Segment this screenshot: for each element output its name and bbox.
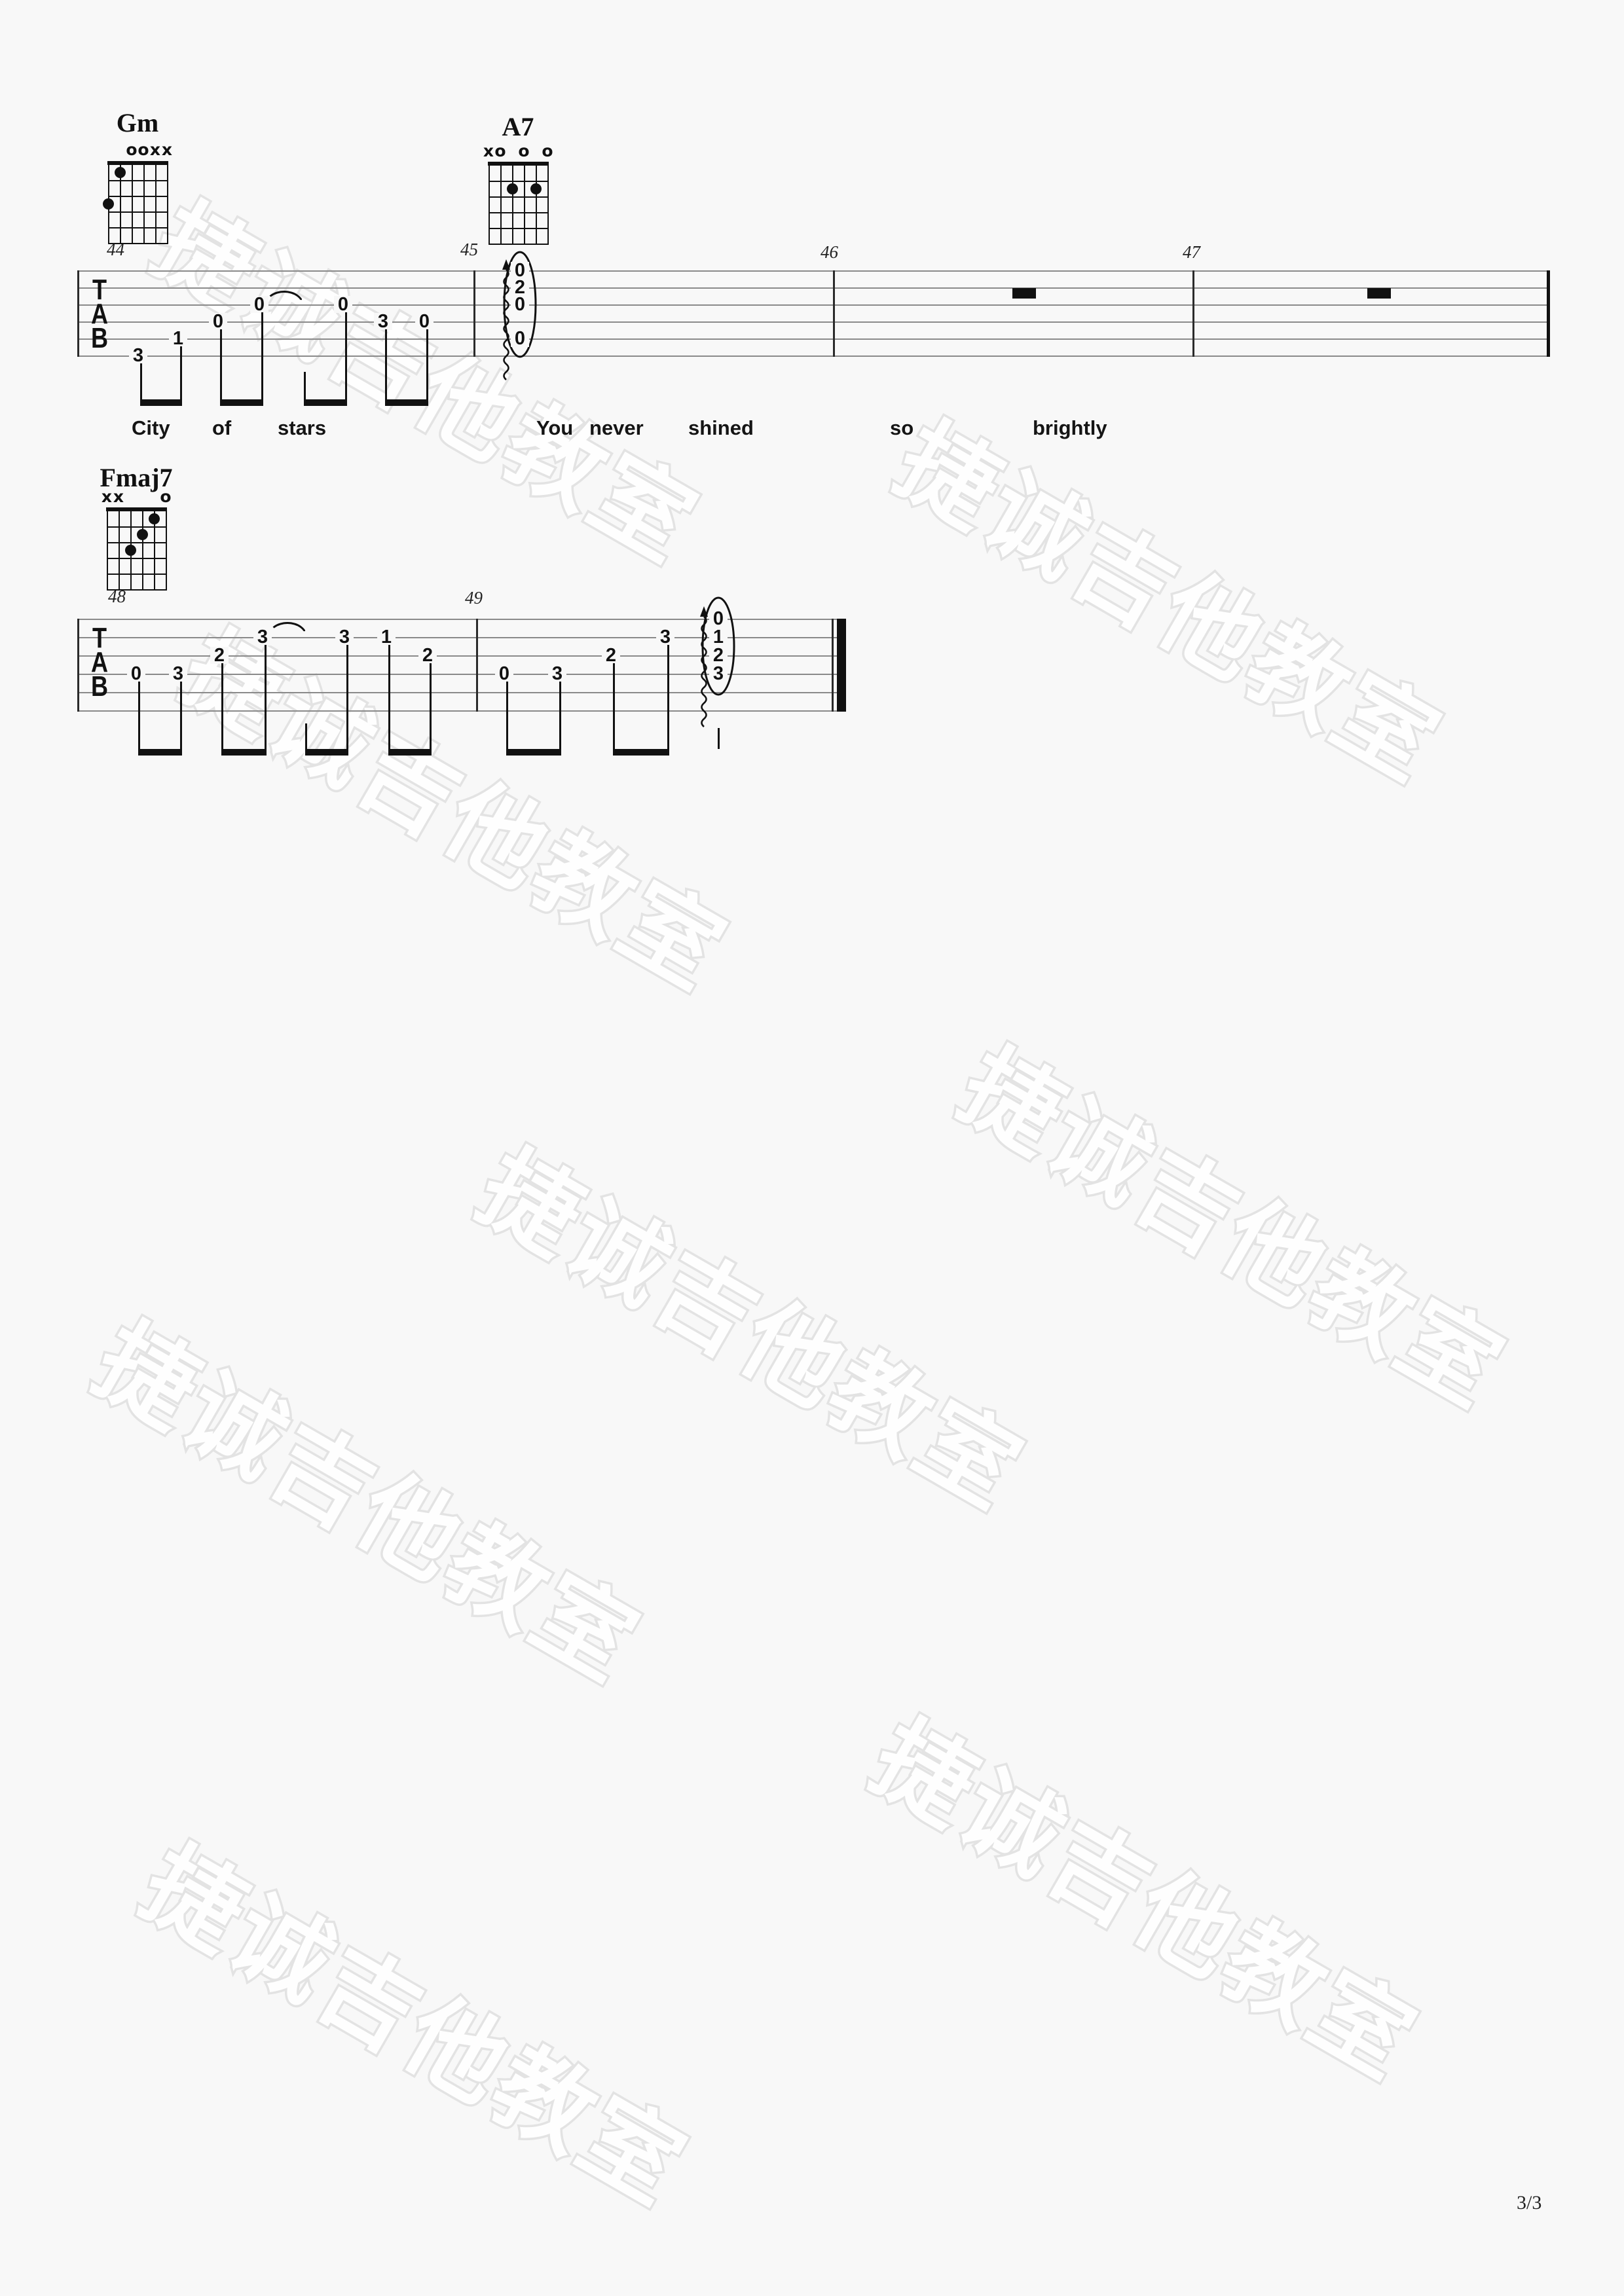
- chord-grid-fret-line: [489, 196, 547, 198]
- chord-grid-nut: [106, 507, 166, 511]
- chord-finger-dot: [103, 198, 114, 210]
- tie-arc: [268, 622, 307, 636]
- lyric-word: shined: [688, 416, 754, 440]
- page-number: 3/3: [1517, 2192, 1541, 2214]
- open-string-indicator: o: [538, 141, 557, 160]
- tab-note: 2: [602, 647, 620, 664]
- chord-grid-string-line: [536, 162, 537, 245]
- chord-grid-string-line: [547, 162, 549, 245]
- chord-finger-dot: [530, 183, 542, 194]
- chord-finger-dot: [125, 545, 136, 556]
- chord-grid-nut: [488, 162, 548, 166]
- barline-start: [77, 270, 79, 357]
- end-barline: [1547, 270, 1550, 357]
- staff-line: [77, 270, 1547, 272]
- final-barline-thick: [837, 619, 846, 712]
- chord-grid-fret-line: [489, 228, 547, 229]
- note-stem: [221, 663, 223, 756]
- chord-grid-fret-line: [489, 181, 547, 182]
- eighth-note-beam: [221, 749, 267, 756]
- note-stem: [430, 663, 432, 756]
- chord-name-label: A7: [452, 111, 583, 142]
- eighth-note-beam: [304, 399, 347, 406]
- lyric-word: brightly: [1033, 416, 1107, 440]
- chord-grid-string-line: [132, 161, 133, 244]
- muted-string-indicator: x: [157, 140, 177, 159]
- tab-note: 3: [335, 629, 354, 646]
- eighth-note-beam: [138, 749, 182, 756]
- measure-number: 46: [821, 242, 838, 263]
- barline: [476, 619, 478, 712]
- tab-note: 0: [209, 313, 227, 330]
- open-string-indicator: o: [156, 487, 175, 506]
- note-stem: [426, 329, 428, 406]
- barline: [473, 270, 475, 357]
- eighth-note-beam: [385, 399, 428, 406]
- tab-clef: TAB: [84, 278, 115, 350]
- final-barline-thin: [832, 619, 834, 712]
- chord-grid-fret-line: [108, 180, 167, 181]
- measure-number: 45: [460, 240, 478, 260]
- sheet-music-page: 捷诚吉他教室捷诚吉他教室捷诚吉他教室捷诚吉他教室捷诚吉他教室捷诚吉他教室捷诚吉他…: [0, 0, 1624, 2296]
- measure-number: 47: [1183, 242, 1200, 263]
- chord-stub-stem: [718, 728, 720, 749]
- chord-grid-string-line: [167, 161, 168, 244]
- chord-grid-fret-line: [107, 526, 166, 528]
- eighth-note-beam: [613, 749, 669, 756]
- tab-note: 3: [656, 629, 674, 646]
- eighth-note-beam: [388, 749, 432, 756]
- chord-name-label: Gm: [72, 107, 203, 138]
- tab-note: 1: [377, 629, 396, 646]
- eighth-note-beam: [140, 399, 182, 406]
- tab-note: 3: [548, 665, 566, 682]
- whole-rest: [1012, 288, 1036, 299]
- strum-chord-fret: 0: [511, 296, 529, 313]
- chord-grid-fret-line: [489, 212, 547, 213]
- chord-grid-fret-line: [107, 558, 166, 559]
- measure-number: 48: [108, 587, 126, 607]
- note-stem: [180, 682, 182, 756]
- strum-chord-fret: 2: [709, 647, 728, 664]
- chord-grid-string-line: [107, 507, 108, 591]
- chord-grid-fret-line: [108, 227, 167, 228]
- music-layer: GmooxxA7xoooFmaj7xxoTAB44454647310003002…: [0, 0, 1624, 2296]
- chord-name-label: Fmaj7: [71, 462, 202, 493]
- eighth-note-beam: [506, 749, 561, 756]
- chord-grid-fret-line: [107, 574, 166, 575]
- tab-note: 2: [418, 647, 437, 664]
- eighth-note-beam: [220, 399, 263, 406]
- chord-grid-string-line: [155, 161, 157, 244]
- chord-finger-dot: [149, 513, 160, 524]
- tab-note: 3: [169, 665, 187, 682]
- note-stem: [506, 682, 508, 756]
- strum-chord-fret: 0: [709, 610, 728, 627]
- strum-chord-fret: 1: [709, 629, 728, 646]
- whole-rest: [1367, 288, 1391, 299]
- tab-note: 0: [127, 665, 145, 682]
- tab-note: 0: [334, 296, 352, 313]
- lyric-word: never: [589, 416, 644, 440]
- eighth-note-beam: [305, 749, 348, 756]
- chord-finger-dot: [115, 167, 126, 178]
- chord-grid-string-line: [489, 162, 490, 245]
- note-stem: [180, 346, 182, 406]
- note-stem: [667, 645, 669, 756]
- lyric-word: You: [536, 416, 573, 440]
- chord-grid-string-line: [166, 507, 167, 591]
- lyric-word: stars: [278, 416, 326, 440]
- tab-note: 3: [129, 347, 147, 364]
- chord-finger-dot: [507, 183, 518, 194]
- barline: [833, 270, 835, 357]
- barline: [1192, 270, 1194, 357]
- tab-note: 3: [374, 313, 392, 330]
- chord-grid-string-line: [143, 161, 145, 244]
- chord-grid-string-line: [142, 507, 143, 591]
- chord-grid-fret-line: [489, 244, 547, 245]
- chord-grid-nut: [107, 161, 168, 165]
- muted-string-indicator: x: [109, 487, 128, 506]
- staff-line: [77, 338, 1547, 340]
- note-stem: [388, 645, 390, 756]
- note-stem: [613, 663, 615, 756]
- chord-grid-fret-line: [108, 196, 167, 197]
- note-stem: [559, 682, 561, 756]
- tie-arc: [265, 291, 304, 305]
- lyric-word: of: [212, 416, 231, 440]
- tab-clef: TAB: [84, 626, 115, 699]
- chord-grid-fret-line: [108, 211, 167, 213]
- measure-number: 49: [465, 588, 483, 608]
- tab-note: 2: [210, 647, 229, 664]
- chord-grid-string-line: [500, 162, 502, 245]
- chord-grid-string-line: [512, 162, 513, 245]
- chord-grid-fret-line: [107, 542, 166, 543]
- note-stem: [138, 682, 140, 756]
- lyric-word: City: [132, 416, 170, 440]
- staff-line: [77, 355, 1547, 357]
- staff-line: [77, 321, 1547, 323]
- strum-chord-fret: 0: [511, 330, 529, 347]
- tab-note: 1: [169, 330, 187, 347]
- staff-line: [77, 287, 1547, 289]
- note-stem: [346, 645, 348, 756]
- note-stem: [345, 312, 347, 406]
- note-stem: [261, 312, 263, 406]
- note-stem: [220, 329, 222, 406]
- measure-number: 44: [107, 240, 124, 260]
- barline-start: [77, 619, 79, 712]
- tab-note: 0: [415, 313, 434, 330]
- chord-finger-dot: [137, 529, 148, 540]
- chord-grid-string-line: [119, 507, 120, 591]
- open-string-indicator: o: [514, 141, 534, 160]
- note-stem: [385, 329, 387, 406]
- strum-chord-fret: 3: [709, 665, 728, 682]
- note-stem: [265, 645, 267, 756]
- lyric-word: so: [890, 416, 913, 440]
- chord-grid-string-line: [524, 162, 525, 245]
- tab-note: 0: [495, 665, 513, 682]
- staff-line: [77, 710, 846, 712]
- arpeggio-strum-icon: [698, 606, 710, 718]
- open-string-indicator: o: [490, 141, 510, 160]
